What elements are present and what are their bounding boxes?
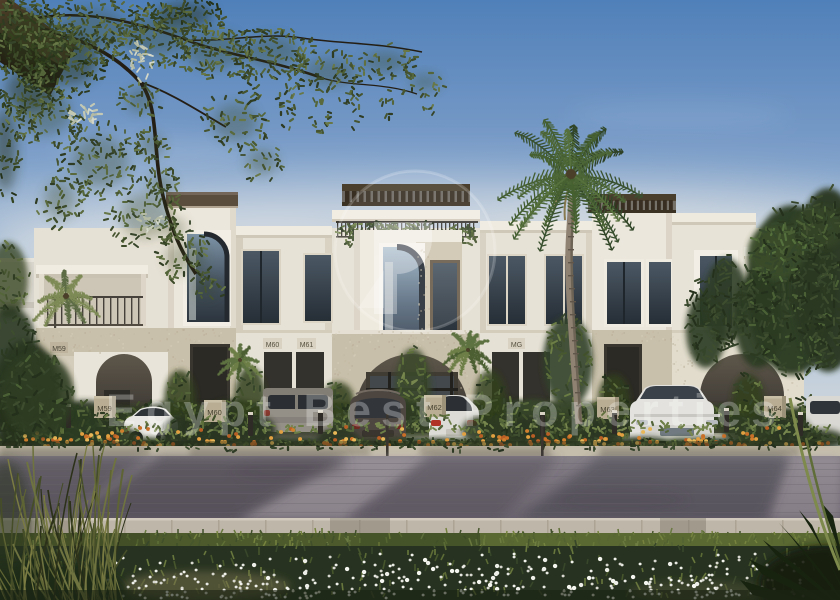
svg-text:M61: M61 <box>300 342 314 349</box>
svg-text:MG: MG <box>511 342 522 349</box>
svg-text:Egypt Best Properties: Egypt Best Properties <box>106 385 786 436</box>
svg-text:M60: M60 <box>266 342 280 349</box>
svg-text:M59: M59 <box>52 346 66 353</box>
